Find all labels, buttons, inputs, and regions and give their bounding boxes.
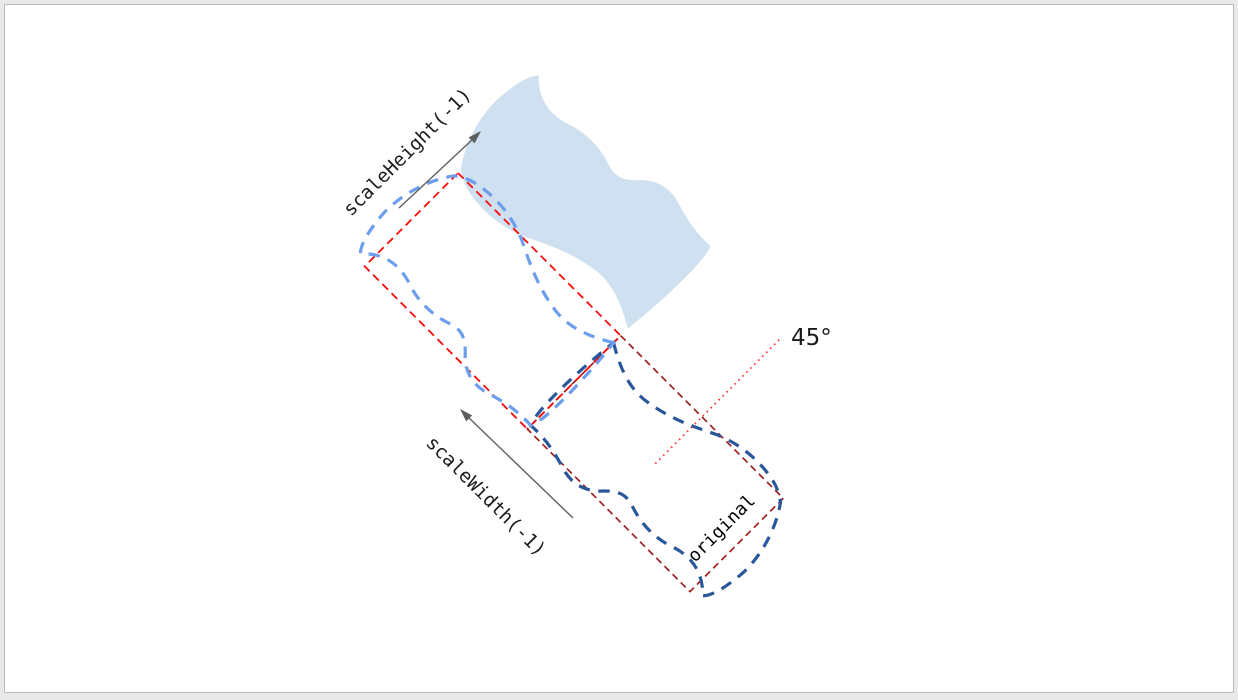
angle-label: 45° <box>791 325 832 351</box>
angle-reference-line <box>655 339 779 463</box>
scale-width-label: scaleWidth(-1) <box>421 432 550 561</box>
original-label: original <box>684 490 760 566</box>
flag-transform-diagram: scaleHeight(-1) scaleWidth(-1) original … <box>0 0 1238 700</box>
original-flag-outline <box>521 327 806 612</box>
original-bounds-box <box>527 336 783 592</box>
result-flag-image <box>435 59 720 344</box>
